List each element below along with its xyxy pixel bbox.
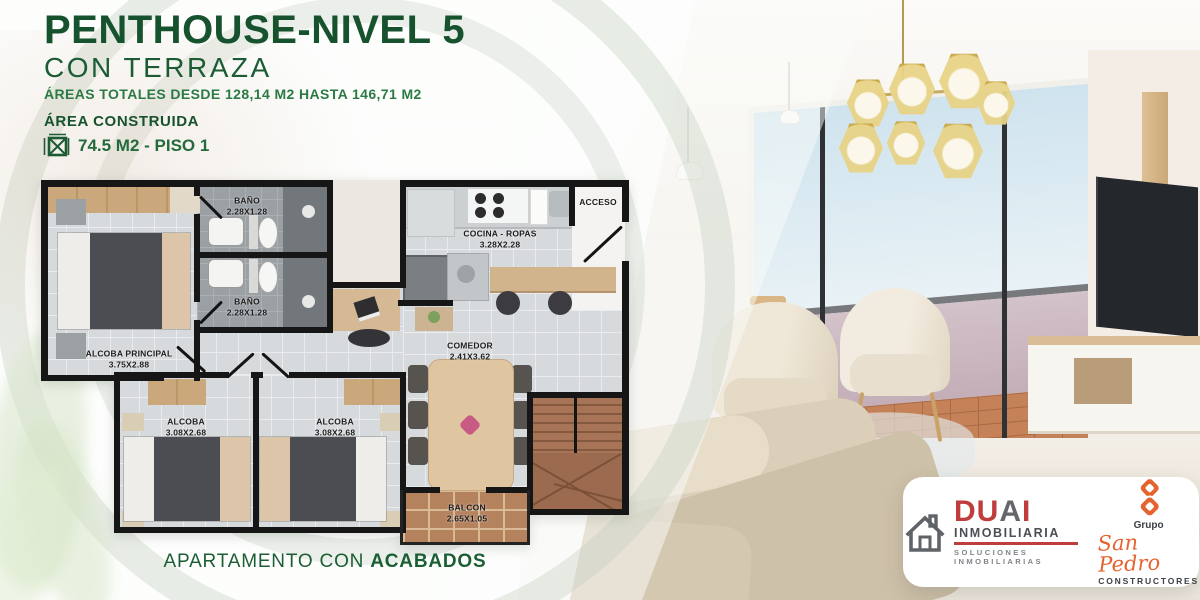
nightstand	[122, 413, 144, 431]
wall	[400, 180, 406, 288]
wall	[400, 487, 440, 493]
total-areas-line: ÁREAS TOTALES DESDE 128,14 M2 HASTA 146,…	[44, 86, 422, 102]
house-icon	[903, 510, 947, 554]
wall	[114, 372, 229, 378]
room-label-alcoba-2: ALCOBA3.08X2.68	[315, 417, 356, 438]
balcony-wall	[400, 490, 403, 545]
san-pedro-grupo: Grupo	[1134, 521, 1164, 531]
wall	[114, 372, 120, 533]
nightstand	[56, 199, 86, 225]
bed-alcoba-1	[124, 437, 250, 521]
fridge	[407, 189, 455, 237]
built-area-value: 74.5 M2 - PISO 1	[78, 136, 209, 156]
tagline-bold: ACABADOS	[370, 551, 486, 572]
burner	[493, 193, 504, 204]
room-label-alcoba-principal: ALCOBA PRINCIPAL3.75X2.88	[86, 349, 173, 370]
toilet-tank	[249, 259, 258, 293]
tagline-prefix: APARTAMENTO CON	[164, 551, 371, 572]
dual-slogan: SOLUCIONES INMOBILIARIAS	[954, 548, 1078, 566]
bed-principal	[58, 233, 190, 329]
console-cubby	[1074, 358, 1132, 404]
wall	[289, 372, 406, 378]
closet	[344, 379, 402, 405]
flyer-canvas: PENTHOUSE-NIVEL 5 CON TERRAZA ÁREAS TOTA…	[0, 0, 1200, 600]
console-top	[1028, 336, 1200, 345]
dining-chair	[512, 365, 532, 393]
knob-panel	[530, 189, 548, 225]
sink	[208, 259, 244, 288]
dual-red-rule	[954, 542, 1078, 545]
wall	[253, 372, 259, 533]
dual-inmobiliaria-logo: DUAI INMOBILIARIA SOLUCIONES INMOBILIARI…	[903, 498, 1078, 566]
plant-pot	[428, 311, 440, 323]
toilet-tank	[249, 215, 258, 249]
tv-screen	[1096, 177, 1198, 338]
dining-chair	[408, 401, 428, 429]
dual-letter: U	[977, 495, 1000, 528]
dual-wordmark: DUAI	[954, 498, 1078, 526]
dual-subtitle: INMOBILIARIA	[954, 526, 1078, 540]
built-area-row: 74.5 M2 - PISO 1	[42, 133, 209, 159]
page-subtitle: CON TERRAZA	[44, 52, 272, 84]
dual-text-block: DUAI INMOBILIARIA SOLUCIONES INMOBILIARI…	[954, 498, 1078, 566]
wall	[400, 180, 628, 187]
nightstand	[56, 333, 86, 359]
wall	[398, 300, 453, 306]
bed-alcoba-2	[260, 437, 386, 521]
san-pedro-constructores: CONSTRUCTORES	[1098, 577, 1199, 586]
room-label-comedor: COMEDOR2.41X3.62	[447, 341, 493, 362]
wall	[41, 180, 48, 381]
wall	[527, 392, 629, 398]
closet	[148, 379, 206, 405]
wall	[486, 487, 533, 493]
wall	[327, 282, 406, 288]
armchair-seat	[850, 354, 940, 396]
wall	[194, 327, 333, 333]
burner	[475, 193, 486, 204]
dual-letter: I	[1022, 495, 1031, 528]
page-title: PENTHOUSE-NIVEL 5	[44, 8, 465, 53]
laundry-sink	[403, 255, 449, 305]
dual-letter: D	[954, 495, 977, 528]
media-console	[1028, 336, 1200, 440]
wall	[194, 252, 333, 258]
toilet-bowl	[258, 261, 278, 293]
stairs	[530, 395, 625, 512]
bar-counter	[490, 267, 616, 293]
dining-chair	[408, 437, 428, 465]
built-area-label: ÁREA CONSTRUIDA	[44, 113, 199, 130]
room-label-bano-2: BAÑO2.28X1.28	[227, 297, 268, 318]
sink	[208, 217, 244, 246]
shower-head	[302, 295, 315, 308]
wall	[622, 261, 629, 512]
balcony-wall	[527, 490, 530, 545]
dining-chair	[408, 365, 428, 393]
nightstand	[380, 413, 402, 431]
wall	[327, 180, 333, 333]
room-label-bano-1: BAÑO2.28X1.28	[227, 196, 268, 217]
washer-door	[457, 265, 475, 283]
void-area	[330, 180, 406, 283]
balcony-wall	[400, 542, 530, 545]
burner	[475, 207, 486, 218]
wall	[622, 180, 629, 222]
bar-stool	[548, 291, 572, 315]
wall	[569, 180, 575, 226]
floor-plan: ALCOBA PRINCIPAL3.75X2.88 BAÑO2.28X1.28 …	[44, 183, 631, 545]
area-dimension-icon	[42, 133, 70, 159]
wall	[114, 527, 406, 533]
room-label-alcoba-1: ALCOBA3.08X2.68	[166, 417, 207, 438]
bar-stool	[496, 291, 520, 315]
tagline: APARTAMENTO CON ACABADOS	[15, 551, 635, 573]
burner	[493, 207, 504, 218]
room-label-acceso: ACCESO	[579, 197, 617, 208]
dual-letter: A	[999, 495, 1022, 528]
toilet-bowl	[258, 217, 278, 249]
shower-head	[302, 205, 315, 218]
wall	[527, 509, 629, 515]
room-label-balcon: BALCON2.65X1.05	[447, 503, 488, 524]
window-mullion	[1002, 91, 1007, 483]
wall	[41, 180, 333, 187]
wall	[194, 180, 200, 196]
san-pedro-icon	[1128, 479, 1170, 519]
wall	[194, 214, 200, 302]
kitchen-sink	[549, 191, 571, 217]
san-pedro-name: San Pedro	[1098, 530, 1200, 575]
room-label-cocina: COCINA - ROPAS3.28X2.28	[463, 229, 536, 250]
logo-chip: DUAI INMOBILIARIA SOLUCIONES INMOBILIARI…	[903, 477, 1199, 587]
desk-chair	[348, 329, 390, 347]
san-pedro-logo: Grupo San Pedro CONSTRUCTORES	[1098, 479, 1199, 586]
